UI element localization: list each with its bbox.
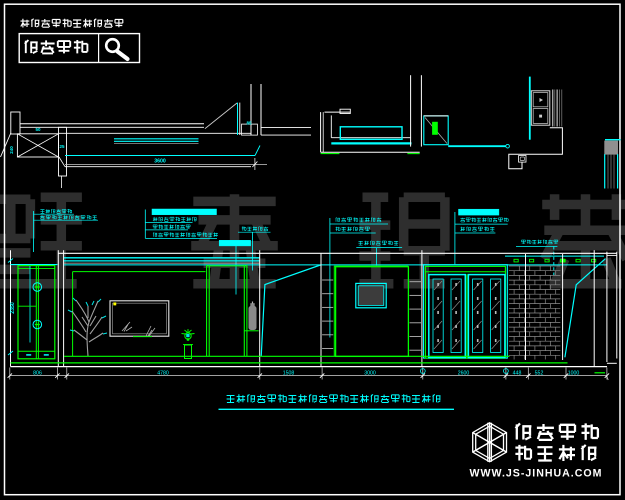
svg-text:3600: 3600 <box>154 159 166 165</box>
svg-text:552: 552 <box>535 370 544 376</box>
svg-text:1000: 1000 <box>568 370 580 376</box>
svg-text:2350: 2350 <box>10 302 16 314</box>
svg-text:85: 85 <box>246 121 252 126</box>
svg-text:448: 448 <box>513 370 522 376</box>
svg-text:25: 25 <box>59 144 65 149</box>
svg-text:806: 806 <box>33 370 42 376</box>
svg-text:50: 50 <box>35 127 41 132</box>
svg-text:3000: 3000 <box>364 370 376 376</box>
svg-text:2600: 2600 <box>458 370 470 376</box>
svg-text:4780: 4780 <box>157 370 169 376</box>
svg-text:WWW.JS-JINHUA.COM: WWW.JS-JINHUA.COM <box>470 467 603 479</box>
svg-text:240: 240 <box>9 146 14 154</box>
svg-text:1508: 1508 <box>283 370 295 376</box>
